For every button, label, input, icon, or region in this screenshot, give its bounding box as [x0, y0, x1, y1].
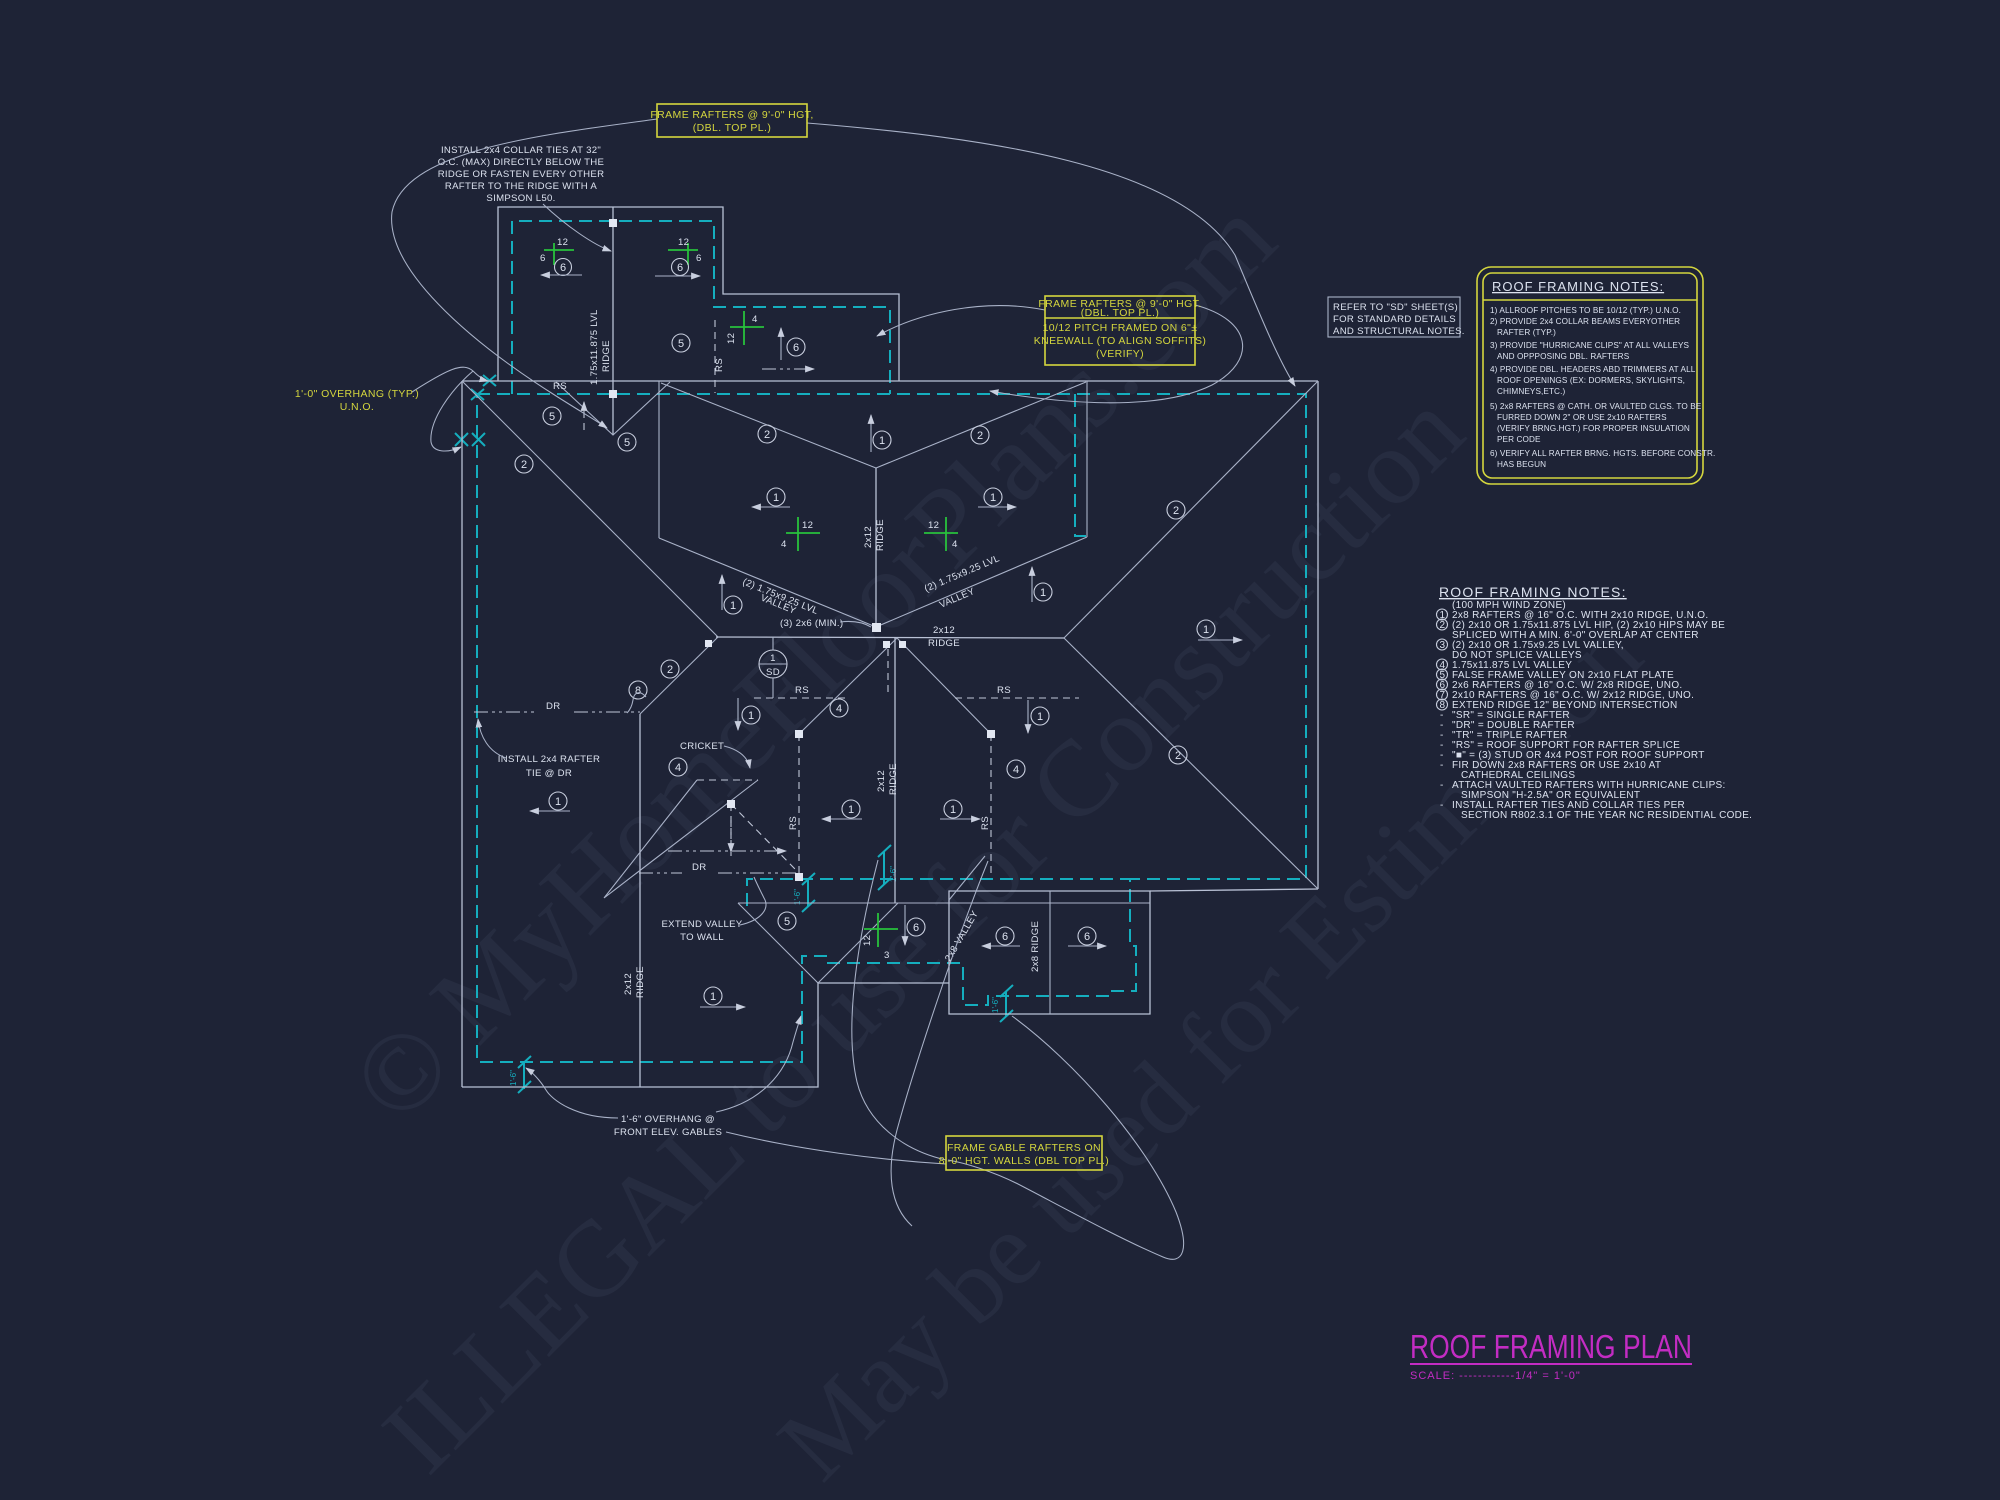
- svg-text:2: 2: [764, 429, 770, 441]
- svg-text:6: 6: [1084, 931, 1090, 943]
- svg-text:2: 2: [977, 430, 983, 442]
- svg-text:1'-6": 1'-6": [509, 1070, 518, 1086]
- svg-text:2: 2: [667, 664, 673, 676]
- svg-text:TIE @ DR: TIE @ DR: [526, 768, 572, 779]
- svg-text:1: 1: [1037, 711, 1043, 723]
- svg-text:2: 2: [521, 459, 527, 471]
- svg-text:1: 1: [879, 435, 885, 447]
- svg-text:O.C. (MAX) DIRECTLY BELOW THE: O.C. (MAX) DIRECTLY BELOW THE: [438, 157, 605, 168]
- svg-text:FRAME RAFTERS @ 9'-0" HGT,: FRAME RAFTERS @ 9'-0" HGT,: [650, 109, 813, 121]
- svg-text:1: 1: [773, 492, 779, 504]
- svg-text:6: 6: [913, 922, 919, 934]
- svg-text:AND STRUCTURAL NOTES.: AND STRUCTURAL NOTES.: [1333, 326, 1465, 337]
- svg-text:1'-6" OVERHANG @: 1'-6" OVERHANG @: [621, 1114, 715, 1125]
- svg-text:4: 4: [1013, 764, 1019, 776]
- svg-text:RAFTER TO THE RIDGE WITH A: RAFTER TO THE RIDGE WITH A: [445, 181, 598, 192]
- svg-text:RIDGE: RIDGE: [888, 763, 899, 795]
- svg-text:AND OPPPOSING DBL. RAFTERS: AND OPPPOSING DBL. RAFTERS: [1497, 352, 1630, 361]
- svg-text:RAFTER (TYP.): RAFTER (TYP.): [1497, 328, 1556, 337]
- svg-text:1: 1: [710, 991, 716, 1003]
- svg-text:3) PROVIDE "HURRICANE CLIPS" A: 3) PROVIDE "HURRICANE CLIPS" AT ALL VALL…: [1490, 341, 1690, 350]
- svg-text:INSTALL 2x4 RAFTER: INSTALL 2x4 RAFTER: [498, 754, 600, 765]
- svg-text:1: 1: [1040, 587, 1046, 599]
- svg-text:RS: RS: [714, 358, 725, 372]
- svg-text:1.75x11.875 LVL: 1.75x11.875 LVL: [589, 309, 600, 385]
- svg-text:3: 3: [884, 950, 890, 961]
- svg-text:3: 3: [1440, 640, 1446, 651]
- svg-text:2: 2: [1173, 505, 1179, 517]
- svg-text:(3) 2x6 (MIN.): (3) 2x6 (MIN.): [780, 618, 843, 629]
- svg-text:(VERIFY): (VERIFY): [1096, 348, 1144, 360]
- svg-text:6: 6: [540, 253, 546, 264]
- svg-text:-: -: [1440, 800, 1444, 811]
- svg-text:2x8 RIDGE: 2x8 RIDGE: [1030, 921, 1041, 972]
- svg-text:SECTION R802.3.1 OF THE YEAR N: SECTION R802.3.1 OF THE YEAR NC RESIDENT…: [1461, 810, 1752, 821]
- svg-text:CRICKET: CRICKET: [680, 741, 724, 752]
- svg-text:4: 4: [781, 539, 787, 550]
- svg-text:5: 5: [784, 916, 790, 928]
- svg-text:HAS BEGUN: HAS BEGUN: [1497, 460, 1546, 469]
- svg-text:1'-6": 1'-6": [889, 866, 898, 882]
- svg-text:5: 5: [549, 411, 555, 423]
- svg-text:1'-0" OVERHANG (TYP.): 1'-0" OVERHANG (TYP.): [295, 388, 419, 400]
- svg-text:8: 8: [635, 685, 641, 697]
- svg-text:5: 5: [624, 437, 630, 449]
- svg-text:8'-0" HGT. WALLS (DBL TOP PL.): 8'-0" HGT. WALLS (DBL TOP PL.): [939, 1155, 1109, 1167]
- svg-text:ROOF OPENINGS (EX: DORMERS, SK: ROOF OPENINGS (EX: DORMERS, SKYLIGHTS,: [1497, 376, 1685, 385]
- svg-text:2: 2: [1440, 620, 1446, 631]
- svg-text:CHIMNEYS,ETC.): CHIMNEYS,ETC.): [1497, 387, 1565, 396]
- svg-text:RS: RS: [980, 816, 991, 830]
- svg-text:RIDGE: RIDGE: [875, 519, 886, 551]
- svg-text:5: 5: [678, 338, 684, 350]
- svg-text:U.N.O.: U.N.O.: [340, 401, 375, 413]
- svg-text:ROOF FRAMING PLAN: ROOF FRAMING PLAN: [1410, 1328, 1692, 1365]
- svg-text:6: 6: [696, 253, 702, 264]
- svg-text:5) 2x8 RAFTERS @ CATH. OR VAUL: 5) 2x8 RAFTERS @ CATH. OR VAULTED CLGS. …: [1490, 402, 1702, 411]
- svg-text:(DBL. TOP PL.): (DBL. TOP PL.): [1081, 307, 1160, 319]
- svg-text:RIDGE: RIDGE: [601, 340, 612, 372]
- svg-text:10/12 PITCH FRAMED ON 6"±: 10/12 PITCH FRAMED ON 6"±: [1043, 322, 1198, 334]
- svg-text:FOR STANDARD DETAILS: FOR STANDARD DETAILS: [1333, 314, 1456, 325]
- svg-text:6: 6: [677, 262, 683, 274]
- svg-text:4: 4: [952, 539, 958, 550]
- svg-text:-: -: [1440, 780, 1444, 791]
- svg-text:1) ALLROOF PITCHES TO BE 10/1: 1) ALLROOF PITCHES TO BE 10/12 (TYP.) U.…: [1490, 306, 1681, 315]
- svg-text:ROOF FRAMING NOTES:: ROOF FRAMING NOTES:: [1439, 584, 1627, 600]
- svg-text:1: 1: [950, 804, 956, 816]
- svg-text:1: 1: [848, 804, 854, 816]
- svg-text:12: 12: [928, 520, 939, 531]
- svg-text:4: 4: [675, 762, 681, 774]
- svg-text:SCALE: ------------1/4" = 1'-0: SCALE: ------------1/4" = 1'-0": [1410, 1370, 1581, 1382]
- svg-text:1: 1: [730, 600, 736, 612]
- svg-text:EXTEND VALLEY: EXTEND VALLEY: [661, 919, 742, 930]
- svg-text:RS: RS: [553, 381, 567, 392]
- svg-text:6: 6: [1002, 931, 1008, 943]
- svg-text:1: 1: [1203, 624, 1209, 636]
- svg-text:KNEEWALL (TO ALIGN SOFFITS): KNEEWALL (TO ALIGN SOFFITS): [1034, 335, 1207, 347]
- svg-text:-: -: [1440, 760, 1444, 771]
- svg-text:6: 6: [793, 342, 799, 354]
- svg-text:1: 1: [770, 653, 776, 664]
- svg-text:(VERIFY BRNG.HGT.) FOR PROPER: (VERIFY BRNG.HGT.) FOR PROPER INSULATION: [1497, 424, 1690, 433]
- svg-text:1: 1: [990, 492, 996, 504]
- svg-text:TO WALL: TO WALL: [680, 932, 724, 943]
- svg-text:(DBL. TOP PL.): (DBL. TOP PL.): [693, 122, 772, 134]
- svg-text:2x12: 2x12: [863, 526, 874, 548]
- svg-text:RIDGE OR FASTEN EVERY OTHER: RIDGE OR FASTEN EVERY OTHER: [438, 169, 605, 180]
- svg-text:PER CODE: PER CODE: [1497, 435, 1541, 444]
- svg-text:2x12: 2x12: [623, 973, 634, 995]
- svg-text:DR: DR: [692, 862, 706, 873]
- svg-text:FURRED DOWN 2" OR USE 2x10 RAF: FURRED DOWN 2" OR USE 2x10 RAFTERS: [1497, 413, 1667, 422]
- svg-text:1'-6": 1'-6": [991, 997, 1000, 1013]
- svg-text:12: 12: [726, 333, 737, 344]
- svg-text:12: 12: [678, 237, 689, 248]
- svg-text:ROOF FRAMING NOTES:: ROOF FRAMING NOTES:: [1492, 279, 1664, 294]
- svg-text:REFER TO "SD" SHEET(S): REFER TO "SD" SHEET(S): [1333, 302, 1458, 313]
- svg-text:RS: RS: [795, 685, 809, 696]
- svg-text:4) PROVIDE DBL. HEADERS ABD TR: 4) PROVIDE DBL. HEADERS ABD TRIMMERS AT …: [1490, 365, 1696, 374]
- svg-text:RIDGE: RIDGE: [928, 638, 960, 649]
- svg-text:12: 12: [862, 935, 873, 946]
- svg-text:SIMPSON L50.: SIMPSON L50.: [486, 193, 555, 204]
- svg-text:RS: RS: [788, 816, 799, 830]
- svg-text:2x12: 2x12: [933, 625, 955, 636]
- svg-text:RS: RS: [997, 685, 1011, 696]
- svg-text:1: 1: [555, 796, 561, 808]
- svg-text:2: 2: [1175, 750, 1181, 762]
- svg-text:2x12: 2x12: [876, 770, 887, 792]
- svg-text:4: 4: [836, 703, 842, 715]
- svg-text:6) VERIFY ALL RAFTER BRNG. HGT: 6) VERIFY ALL RAFTER BRNG. HGTS. BEFORE …: [1490, 449, 1715, 458]
- svg-text:DR: DR: [546, 701, 560, 712]
- svg-text:6: 6: [560, 262, 566, 274]
- svg-text:FRAME GABLE RAFTERS ON: FRAME GABLE RAFTERS ON: [947, 1142, 1101, 1154]
- svg-text:2) PROVIDE 2x4 COLLAR BEAMS EV: 2) PROVIDE 2x4 COLLAR BEAMS EVERYOTHER: [1490, 317, 1680, 326]
- svg-text:RIDGE: RIDGE: [635, 966, 646, 998]
- svg-text:SD: SD: [766, 667, 780, 678]
- svg-text:12: 12: [802, 520, 813, 531]
- svg-text:4: 4: [752, 314, 758, 325]
- svg-text:12: 12: [557, 237, 568, 248]
- svg-text:FRONT ELEV. GABLES: FRONT ELEV. GABLES: [614, 1127, 722, 1138]
- svg-text:1: 1: [748, 710, 754, 722]
